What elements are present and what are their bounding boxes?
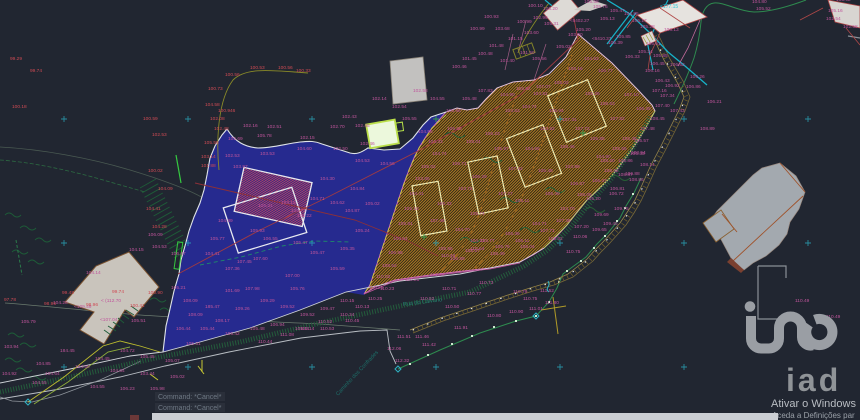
svg-text:110.25: 110.25 — [369, 285, 384, 291]
svg-text:105.02: 105.02 — [554, 80, 569, 86]
svg-text:100.56: 100.56 — [225, 72, 240, 78]
svg-text:104.72: 104.72 — [120, 348, 135, 354]
svg-text:106.16: 106.16 — [568, 66, 583, 72]
svg-text:111.52: 111.52 — [540, 288, 554, 294]
svg-text:104.81: 104.81 — [533, 91, 548, 97]
svg-text:110.34: 110.34 — [340, 312, 355, 318]
svg-text:Ativar o Windows: Ativar o Windows — [771, 398, 856, 410]
svg-text:106.46: 106.46 — [560, 144, 575, 150]
svg-text:110.21: 110.21 — [405, 277, 420, 283]
svg-text:105.47: 105.47 — [610, 8, 625, 14]
svg-text:106.05: 106.05 — [577, 192, 592, 198]
svg-text:104.85: 104.85 — [36, 361, 51, 367]
svg-text:108.09: 108.09 — [183, 298, 198, 304]
svg-text:105.76: 105.76 — [593, 4, 608, 10]
svg-text:104.75: 104.75 — [458, 186, 473, 192]
svg-text:107.42: 107.42 — [508, 166, 523, 172]
svg-text:100.48: 100.48 — [478, 51, 493, 57]
svg-text:106.23: 106.23 — [120, 386, 135, 392]
svg-text:101.88: 101.88 — [201, 163, 216, 169]
svg-text:108.52: 108.52 — [382, 263, 397, 269]
svg-text:105.51: 105.51 — [131, 318, 146, 324]
svg-text:101.45: 101.45 — [462, 56, 477, 62]
svg-text:107.48: 107.48 — [430, 218, 445, 224]
svg-text:104.63: 104.63 — [584, 56, 599, 62]
svg-text:104.84: 104.84 — [350, 186, 365, 192]
svg-text:<6410.37: <6410.37 — [592, 36, 612, 41]
svg-text:107.82: 107.82 — [610, 116, 625, 122]
svg-text:105.47: 105.47 — [293, 240, 308, 246]
svg-text:105.56: 105.56 — [532, 56, 547, 62]
svg-text:105.98: 105.98 — [150, 386, 165, 392]
svg-text:107.07: 107.07 — [536, 84, 551, 90]
svg-text:104.41: 104.41 — [205, 251, 220, 257]
svg-text:105.02: 105.02 — [556, 44, 571, 50]
svg-text:105.48: 105.48 — [462, 96, 477, 102]
svg-text:101.50: 101.50 — [520, 50, 535, 56]
svg-text:105.93: 105.93 — [250, 228, 265, 234]
svg-text:106.48: 106.48 — [545, 191, 560, 197]
svg-text:106.86: 106.86 — [686, 84, 701, 90]
svg-text:Aceda a Definições par: Aceda a Definições par — [772, 411, 855, 420]
svg-text:104.71: 104.71 — [532, 221, 547, 227]
svg-text:104.64: 104.64 — [45, 371, 60, 377]
svg-text:102.70: 102.70 — [330, 124, 345, 130]
svg-text:98.96: 98.96 — [86, 302, 98, 308]
svg-text:104.90: 104.90 — [500, 92, 515, 98]
svg-text:110.73: 110.73 — [479, 280, 494, 286]
svg-text:105.95: 105.95 — [438, 246, 453, 252]
svg-text:100.10: 100.10 — [528, 3, 543, 9]
svg-text:105.28: 105.28 — [640, 24, 655, 30]
svg-text:100.53: 100.53 — [250, 65, 265, 71]
svg-text:110.25: 110.25 — [368, 296, 383, 302]
svg-text:102.46: 102.46 — [360, 141, 375, 147]
svg-text:105.26: 105.26 — [585, 91, 600, 97]
svg-text:102.50: 102.50 — [333, 146, 348, 152]
svg-text:105.92: 105.92 — [516, 86, 531, 92]
svg-text:105.20: 105.20 — [576, 27, 591, 33]
svg-text:106.26: 106.26 — [690, 74, 705, 80]
svg-text:105.42: 105.42 — [225, 331, 240, 337]
svg-text:104.60: 104.60 — [297, 146, 312, 152]
svg-text:108.54: 108.54 — [631, 150, 646, 156]
svg-text:105.85: 105.85 — [653, 53, 668, 59]
svg-text:104.15: 104.15 — [129, 247, 144, 253]
svg-text:105.60: 105.60 — [447, 126, 462, 132]
svg-text:106.23: 106.23 — [485, 131, 500, 137]
svg-text:104.92: 104.92 — [2, 371, 17, 377]
svg-text:104.58: 104.58 — [205, 102, 220, 108]
svg-text:<6402.27: <6402.27 — [570, 18, 590, 23]
svg-text:103.14: 103.14 — [201, 154, 216, 160]
svg-text:108.89: 108.89 — [700, 126, 715, 132]
svg-text:107.98: 107.98 — [245, 286, 260, 292]
svg-text:110.52: 110.52 — [318, 319, 333, 325]
svg-text:110.44: 110.44 — [258, 339, 273, 345]
svg-text:106.45: 106.45 — [636, 106, 651, 112]
svg-text:102.16: 102.16 — [243, 123, 258, 129]
svg-text:110.49: 110.49 — [795, 298, 810, 304]
svg-text:110.80: 110.80 — [487, 313, 502, 319]
svg-text:109.45: 109.45 — [603, 221, 618, 227]
svg-text:104.55: 104.55 — [430, 96, 445, 102]
svg-text:99.49: 99.49 — [62, 290, 74, 296]
svg-text:Command: *Cancel*: Command: *Cancel* — [158, 405, 222, 412]
svg-text:106.94: 106.94 — [270, 322, 285, 328]
svg-text:105.02: 105.02 — [421, 164, 436, 170]
svg-text:106.86: 106.86 — [618, 158, 633, 164]
svg-text:105.44: 105.44 — [200, 326, 215, 332]
svg-text:104.99: 104.99 — [565, 164, 580, 170]
svg-text:105.47: 105.47 — [310, 250, 325, 256]
svg-text:105.24: 105.24 — [355, 228, 370, 234]
svg-text:105.79: 105.79 — [21, 319, 36, 325]
svg-text:110.77: 110.77 — [467, 291, 482, 297]
svg-text:104.80: 104.80 — [752, 0, 767, 5]
svg-text:103.44: 103.44 — [140, 371, 155, 377]
svg-text:104.74: 104.74 — [522, 104, 537, 110]
svg-text:110.76: 110.76 — [513, 289, 528, 295]
svg-text:105.02: 105.02 — [170, 374, 185, 380]
svg-text:106.16: 106.16 — [645, 68, 660, 74]
svg-text:102.54: 102.54 — [826, 16, 841, 22]
svg-text:104.14: 104.14 — [86, 270, 101, 276]
svg-text:106.55: 106.55 — [263, 236, 278, 242]
svg-text:105.52: 105.52 — [756, 6, 771, 12]
svg-text:105.21: 105.21 — [258, 203, 273, 209]
svg-text:104.87: 104.87 — [345, 208, 360, 214]
svg-text:102.51: 102.51 — [267, 124, 282, 130]
svg-text:111.46: 111.46 — [415, 334, 429, 340]
svg-text:106.11: 106.11 — [515, 238, 530, 244]
svg-text:111.42: 111.42 — [422, 342, 436, 348]
svg-text:105.59: 105.59 — [330, 266, 345, 272]
svg-text:107.36: 107.36 — [556, 218, 571, 224]
svg-text:105.01: 105.01 — [466, 139, 481, 145]
svg-text:105.74: 105.74 — [470, 211, 485, 217]
svg-text:105.02: 105.02 — [365, 201, 380, 207]
svg-text:105.77: 105.77 — [210, 236, 225, 242]
svg-text:103.20: 103.20 — [543, 6, 558, 12]
svg-text:106.63: 106.63 — [600, 101, 615, 107]
svg-text:104.89: 104.89 — [218, 218, 233, 224]
svg-text:105.31: 105.31 — [544, 21, 559, 27]
svg-text:102.15: 102.15 — [300, 135, 315, 141]
svg-text:106.67: 106.67 — [570, 181, 585, 187]
svg-text:101.69: 101.69 — [225, 288, 240, 294]
svg-text:105.34: 105.34 — [638, 49, 653, 55]
svg-text:106.13: 106.13 — [664, 27, 679, 33]
svg-text:111.80: 111.80 — [545, 300, 559, 306]
svg-text:106.21: 106.21 — [707, 99, 722, 105]
svg-text:102.58: 102.58 — [843, 24, 858, 30]
svg-text:Command: *Cancel*: Command: *Cancel* — [158, 394, 222, 401]
svg-text:101.40: 101.40 — [500, 58, 515, 64]
svg-text:100.41: 100.41 — [130, 303, 145, 309]
svg-text:102.43: 102.43 — [342, 114, 357, 120]
svg-text:99.29: 99.29 — [10, 56, 22, 62]
svg-text:106.52: 106.52 — [670, 62, 685, 68]
svg-text:104.33: 104.33 — [428, 139, 443, 145]
svg-text:105.13: 105.13 — [600, 16, 615, 22]
svg-text:107.72: 107.72 — [575, 126, 590, 132]
svg-text:105.92: 105.92 — [836, 0, 851, 3]
svg-text:110.90: 110.90 — [509, 309, 524, 315]
svg-text:107.36: 107.36 — [225, 266, 240, 272]
svg-text:104.09: 104.09 — [158, 186, 173, 192]
svg-text:105.31: 105.31 — [186, 341, 201, 347]
svg-text:103.94: 103.94 — [4, 344, 19, 350]
svg-text:104.70: 104.70 — [560, 206, 575, 212]
svg-text:107.00: 107.00 — [285, 273, 300, 279]
svg-text:104.85: 104.85 — [624, 11, 639, 17]
svg-text:110.50: 110.50 — [445, 304, 460, 310]
svg-text:105.18: 105.18 — [404, 206, 419, 212]
svg-text:110.75: 110.75 — [566, 249, 581, 255]
svg-text:106.44: 106.44 — [176, 326, 191, 332]
svg-text:109.51: 109.51 — [295, 326, 310, 332]
svg-text:105.85: 105.85 — [616, 34, 631, 40]
svg-text:105.78: 105.78 — [257, 133, 272, 139]
svg-text:107.34: 107.34 — [660, 93, 675, 99]
svg-text:102.08: 102.08 — [210, 116, 225, 122]
svg-text:105.07: 105.07 — [165, 358, 180, 364]
svg-text:104.30: 104.30 — [320, 176, 335, 182]
svg-text:105.85: 105.85 — [590, 136, 605, 142]
svg-text:110.02: 110.02 — [376, 274, 391, 280]
svg-text:107.60: 107.60 — [253, 256, 268, 262]
svg-text:104.92: 104.92 — [540, 126, 555, 132]
svg-text:105.17: 105.17 — [632, 18, 647, 24]
svg-text:108.86: 108.86 — [629, 177, 644, 183]
svg-text:104.53: 104.53 — [152, 244, 167, 250]
svg-text:109.69: 109.69 — [594, 212, 609, 218]
svg-text:108.17: 108.17 — [215, 318, 230, 324]
svg-text:104.28: 104.28 — [152, 224, 167, 230]
svg-text:111.51: 111.51 — [397, 334, 411, 340]
svg-text:104.58: 104.58 — [418, 129, 433, 135]
svg-text:104.62: 104.62 — [330, 200, 345, 206]
svg-text:106.49: 106.49 — [490, 251, 505, 257]
svg-text:105.11: 105.11 — [515, 198, 530, 204]
svg-text:106.32: 106.32 — [437, 201, 452, 207]
svg-text:104.55: 104.55 — [32, 380, 47, 386]
svg-text:107.40: 107.40 — [655, 103, 670, 109]
svg-text:110.52: 110.52 — [420, 296, 435, 302]
svg-text:105.16: 105.16 — [828, 8, 843, 14]
svg-text:104.55: 104.55 — [90, 384, 105, 390]
svg-text:100.46: 100.46 — [452, 64, 467, 70]
svg-text:105.94: 105.94 — [549, 108, 564, 114]
svg-text:105.55: 105.55 — [204, 140, 219, 146]
svg-text:99.74: 99.74 — [30, 68, 42, 74]
svg-text:106.47: 106.47 — [592, 178, 607, 184]
svg-text:iad: iad — [786, 362, 841, 398]
svg-text:104.70: 104.70 — [455, 227, 470, 233]
svg-text:100.59: 100.59 — [143, 116, 158, 122]
svg-text:< (112.70: < (112.70 — [101, 298, 121, 304]
svg-text:<107.04: <107.04 — [100, 317, 118, 323]
svg-text:107.71: 107.71 — [540, 228, 555, 234]
svg-text:103.53: 103.53 — [260, 151, 275, 157]
svg-text:108.14: 108.14 — [640, 162, 655, 168]
svg-text:100.73: 100.73 — [208, 86, 223, 92]
svg-text:100.18: 100.18 — [12, 104, 27, 110]
svg-text:110.13: 110.13 — [355, 304, 370, 310]
svg-text:105.81: 105.81 — [398, 221, 413, 227]
svg-text:109.29: 109.29 — [260, 298, 275, 304]
svg-text:106.52: 106.52 — [604, 168, 619, 174]
svg-text:104.56: 104.56 — [380, 161, 395, 167]
svg-text:107.43: 107.43 — [670, 108, 685, 114]
svg-text:110.75: 110.75 — [523, 296, 538, 302]
svg-text:106.67: 106.67 — [171, 251, 186, 257]
svg-text:104.63: 104.63 — [505, 108, 520, 114]
svg-text:106.54: 106.54 — [393, 236, 408, 242]
svg-text:106.09: 106.09 — [148, 232, 163, 238]
svg-text:106.96: 106.96 — [388, 250, 403, 256]
svg-text:184.45: 184.45 — [60, 348, 75, 354]
svg-text:112.06: 112.06 — [387, 346, 402, 352]
svg-text:104.15: 104.15 — [281, 200, 296, 206]
svg-text:112.32: 112.32 — [395, 358, 410, 364]
svg-text:105.97: 105.97 — [494, 146, 509, 152]
svg-text:104.45: 104.45 — [95, 356, 110, 362]
svg-text:102.53: 102.53 — [152, 132, 167, 138]
svg-text:108.20: 108.20 — [600, 158, 615, 164]
svg-text:104.41: 104.41 — [146, 206, 161, 212]
svg-text:100.56: 100.56 — [278, 65, 293, 71]
svg-text:99.74: 99.74 — [112, 289, 124, 295]
svg-text:104.64: 104.64 — [110, 368, 125, 374]
svg-text:105.55: 105.55 — [402, 116, 417, 122]
svg-text:100.946: 100.946 — [218, 108, 236, 114]
svg-text:110.06: 110.06 — [573, 234, 588, 240]
svg-text:105.48: 105.48 — [538, 168, 553, 174]
svg-text:108.09: 108.09 — [188, 312, 203, 318]
svg-text:102.53: 102.53 — [225, 153, 240, 159]
svg-text:106.45: 106.45 — [650, 61, 665, 67]
svg-text:105.57: 105.57 — [634, 138, 649, 144]
svg-text:109.26: 109.26 — [235, 306, 250, 312]
svg-text:106.92: 106.92 — [665, 83, 680, 89]
svg-text:110.48: 110.48 — [441, 253, 456, 259]
svg-text:104.71: 104.71 — [310, 196, 325, 202]
svg-text:107.27: 107.27 — [498, 191, 513, 197]
svg-text:109.75: 109.75 — [614, 206, 629, 212]
svg-text:106.77: 106.77 — [598, 68, 613, 74]
svg-text:111.08: 111.08 — [280, 332, 294, 338]
svg-text:102.99: 102.99 — [533, 15, 548, 21]
svg-text:100.90: 100.90 — [148, 290, 163, 296]
svg-text:102.45: 102.45 — [355, 123, 370, 129]
svg-text:106.76: 106.76 — [495, 244, 510, 250]
svg-text:107.48: 107.48 — [640, 126, 655, 132]
svg-text:109.65: 109.65 — [592, 227, 607, 233]
svg-text:103.85: 103.85 — [415, 176, 430, 182]
svg-text:110.71: 110.71 — [442, 286, 457, 292]
svg-text:101.15: 101.15 — [508, 36, 523, 42]
svg-text:110.15: 110.15 — [340, 298, 355, 304]
svg-text:100.33: 100.33 — [296, 68, 311, 74]
svg-text:105.35: 105.35 — [340, 246, 355, 252]
svg-text:109.52: 109.52 — [300, 312, 315, 318]
svg-text:105.48: 105.48 — [250, 326, 265, 332]
svg-text:111.01: 111.01 — [529, 306, 543, 312]
svg-text:107.31: 107.31 — [562, 117, 577, 123]
svg-text:106.29: 106.29 — [472, 174, 487, 180]
svg-text:101.48: 101.48 — [489, 43, 504, 49]
svg-text:105.52: 105.52 — [548, 236, 563, 242]
svg-text:107.20: 107.20 — [574, 224, 589, 230]
svg-text:106.36: 106.36 — [505, 231, 520, 237]
svg-text:102.54: 102.54 — [392, 104, 407, 110]
svg-text:107.10: 107.10 — [624, 92, 639, 98]
svg-text:105.21: 105.21 — [171, 285, 186, 291]
svg-text:<177.15: <177.15 — [660, 4, 678, 10]
svg-text:107.83: 107.83 — [478, 88, 493, 94]
svg-text:111.91: 111.91 — [454, 325, 468, 331]
svg-text:105.51: 105.51 — [646, 41, 661, 47]
svg-text:106.33: 106.33 — [625, 54, 640, 60]
svg-text:102.58: 102.58 — [413, 88, 428, 94]
svg-text:105.76: 105.76 — [290, 286, 305, 292]
svg-text:103.97: 103.97 — [233, 164, 248, 170]
svg-text:104.53: 104.53 — [355, 158, 370, 164]
svg-text:110.64: 110.64 — [470, 246, 485, 252]
svg-text:100.99: 100.99 — [470, 26, 485, 32]
svg-text:107.45: 107.45 — [237, 259, 252, 265]
svg-text:100.93: 100.93 — [484, 14, 499, 20]
svg-text:104.71: 104.71 — [470, 238, 485, 244]
svg-text:109.52: 109.52 — [280, 304, 295, 310]
svg-text:100.02: 100.02 — [148, 168, 163, 174]
svg-text:97.78: 97.78 — [4, 297, 16, 303]
svg-text:102.14: 102.14 — [372, 96, 387, 102]
svg-text:110.54: 110.54 — [430, 272, 445, 278]
svg-text:106.98: 106.98 — [446, 108, 461, 114]
svg-text:104.66: 104.66 — [525, 146, 540, 152]
svg-text:105.69: 105.69 — [228, 136, 243, 142]
svg-text:105.55: 105.55 — [612, 146, 627, 152]
svg-text:103.68: 103.68 — [495, 26, 510, 32]
svg-text:103.60: 103.60 — [524, 30, 539, 36]
svg-text:105.45: 105.45 — [140, 354, 155, 360]
svg-text:109.47: 109.47 — [320, 306, 335, 312]
svg-text:104.74: 104.74 — [432, 151, 447, 157]
svg-text:100.99: 100.99 — [517, 19, 532, 25]
svg-text:185.47: 185.47 — [205, 304, 220, 310]
svg-text:110.53: 110.53 — [320, 326, 335, 332]
svg-text:108.45: 108.45 — [650, 116, 665, 122]
svg-text:106.71: 106.71 — [452, 161, 467, 167]
svg-text:106.22: 106.22 — [297, 213, 312, 219]
svg-text:102.48: 102.48 — [214, 126, 229, 132]
svg-text:104.41: 104.41 — [409, 191, 424, 197]
svg-text:110.45: 110.45 — [345, 318, 360, 324]
svg-text:104.50: 104.50 — [75, 364, 90, 370]
svg-text:106.04: 106.04 — [520, 244, 535, 250]
svg-text:106.72: 106.72 — [609, 191, 624, 197]
svg-text:98.95: 98.95 — [44, 301, 56, 307]
